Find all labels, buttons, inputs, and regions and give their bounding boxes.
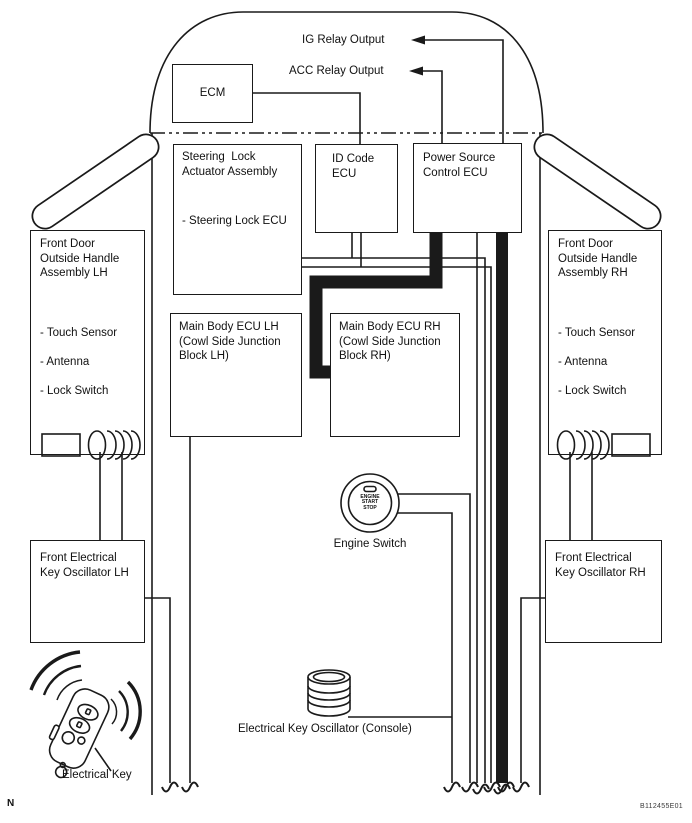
box-front-door-handle-rh: Front Door Outside Handle Assembly RH - … <box>548 230 662 455</box>
box-power-source-control-ecu: Power Source Control ECU <box>413 143 522 233</box>
door-lh-lock-switch: - Lock Switch <box>40 385 108 397</box>
steering-lock-ecu-item: - Steering Lock ECU <box>182 214 287 229</box>
wire-ecm-to-id-code <box>253 93 360 144</box>
ecm-label: ECM <box>200 86 226 101</box>
ig-relay-wire <box>411 36 503 144</box>
radio-waves-left-icon <box>31 652 82 700</box>
box-front-door-handle-lh: Front Door Outside Handle Assembly LH - … <box>30 230 145 455</box>
a-pillar-left <box>45 147 146 216</box>
wire-oscillator-lh <box>145 598 170 783</box>
wire-break-symbols <box>162 783 529 794</box>
figure-code-label: B112455E01 <box>640 803 683 810</box>
engine-switch-button-text: ENGINE START STOP <box>346 495 394 512</box>
acc-relay-output-label: ACC Relay Output <box>289 64 384 78</box>
ig-relay-output-label: IG Relay Output <box>302 33 384 47</box>
radio-waves-right-icon <box>111 682 140 739</box>
main-body-rh-title: Main Body ECU RH (Cowl Side Junction Blo… <box>339 320 441 364</box>
oscillator-rh-title: Front Electrical Key Oscillator RH <box>555 551 646 580</box>
box-id-code-ecu: ID Code ECU <box>315 144 398 233</box>
main-body-lh-title: Main Body ECU LH (Cowl Side Junction Blo… <box>179 320 281 364</box>
ig-arrowhead-icon <box>411 36 425 45</box>
box-front-electrical-key-oscillator-rh: Front Electrical Key Oscillator RH <box>545 540 662 643</box>
engine-switch-label: Engine Switch <box>310 537 430 551</box>
power-source-ecu-title: Power Source Control ECU <box>423 151 495 180</box>
box-main-body-ecu-rh: Main Body ECU RH (Cowl Side Junction Blo… <box>330 313 460 437</box>
box-main-body-ecu-lh: Main Body ECU LH (Cowl Side Junction Blo… <box>170 313 302 437</box>
box-ecm: ECM <box>172 64 253 123</box>
door-rh-antenna: - Antenna <box>558 356 607 368</box>
console-oscillator-label: Electrical Key Oscillator (Console) <box>238 722 412 736</box>
electrical-key-label: Electrical Key <box>62 768 132 782</box>
door-rh-lock-switch: - Lock Switch <box>558 385 626 397</box>
acc-relay-wire <box>409 67 442 144</box>
wire-oscillator-rh <box>521 598 545 783</box>
box-steering-lock-actuator: Steering Lock Actuator Assembly - Steeri… <box>173 144 302 295</box>
wire-engine-switch-bottom <box>397 513 452 783</box>
console-oscillator-coil-icon <box>308 670 350 716</box>
door-lh-touch-sensor: - Touch Sensor <box>40 327 117 339</box>
door-lh-title: Front Door Outside Handle Assembly LH <box>40 237 119 281</box>
box-front-electrical-key-oscillator-lh: Front Electrical Key Oscillator LH <box>30 540 145 643</box>
door-rh-title: Front Door Outside Handle Assembly RH <box>558 237 637 281</box>
id-code-ecu-title: ID Code ECU <box>332 152 374 181</box>
door-lh-antenna: - Antenna <box>40 356 89 368</box>
oscillator-lh-title: Front Electrical Key Oscillator LH <box>40 551 129 580</box>
smart-key-system-diagram: ECM Steering Lock Actuator Assembly - St… <box>0 0 692 823</box>
door-rh-touch-sensor: - Touch Sensor <box>558 327 635 339</box>
steering-lock-title: Steering Lock Actuator Assembly <box>182 150 277 179</box>
acc-arrowhead-icon <box>409 67 423 76</box>
compass-n-label: N <box>7 798 14 809</box>
a-pillar-right <box>547 147 648 216</box>
